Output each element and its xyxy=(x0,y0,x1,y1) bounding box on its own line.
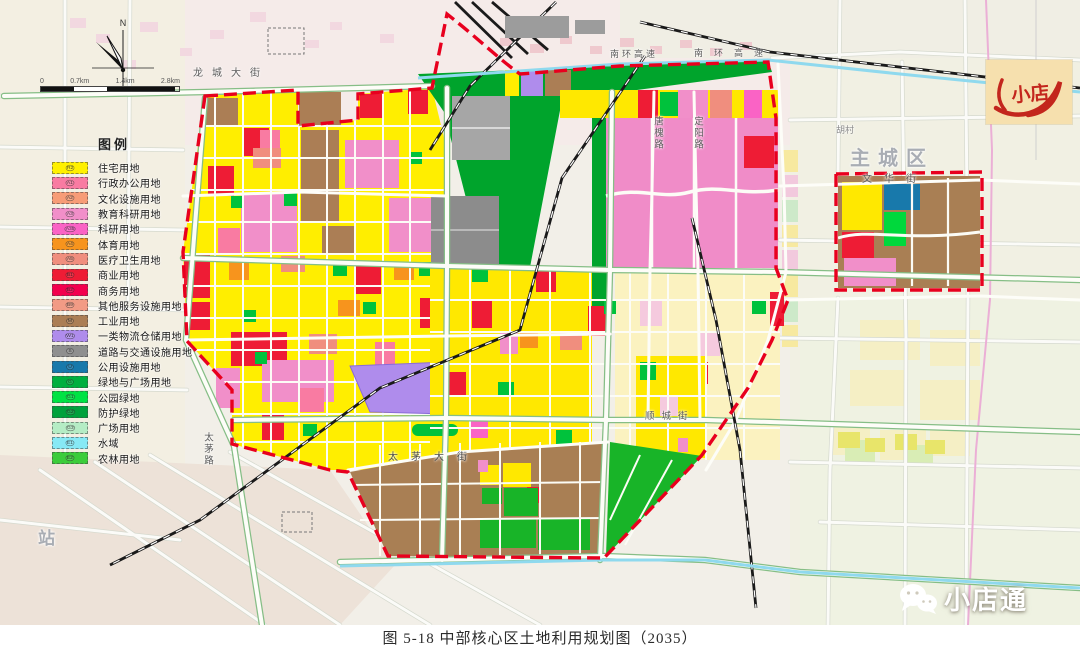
legend-code: M xyxy=(66,318,73,324)
legend-label: 住宅用地 xyxy=(98,160,140,175)
legend-code: A2 xyxy=(66,195,75,201)
legend-label: 防护绿地 xyxy=(98,405,140,420)
legend-item: B9其他服务设施用地 xyxy=(52,298,242,313)
page: N 0 0.7km 1.4km 2.8km 图例 R2住宅用地 A1行政办公用地… xyxy=(0,0,1080,655)
street-label-nanhuan-w: 南环高速 xyxy=(610,47,658,60)
legend-swatch: A5 xyxy=(52,253,88,265)
legend-swatch: U xyxy=(52,361,88,373)
legend-code: A3 xyxy=(66,210,75,216)
north-label: N xyxy=(88,18,158,28)
legend-code: E2 xyxy=(66,455,75,461)
land-use-map: N 0 0.7km 1.4km 2.8km 图例 R2住宅用地 A1行政办公用地… xyxy=(0,0,1080,625)
legend-item: A35科研用地 xyxy=(52,221,242,236)
street-label-taimao-road: 太茅路 xyxy=(200,432,214,467)
legend-item: A2文化设施用地 xyxy=(52,191,242,206)
legend-label: 农林用地 xyxy=(98,451,140,466)
legend-item: W1一类物流仓储用地 xyxy=(52,328,242,343)
xiaodian-stamp: 小店 xyxy=(986,60,1072,124)
street-label-dingyang: 定阳路 xyxy=(690,116,704,151)
area-label-main-city: 主城区 xyxy=(850,142,934,171)
legend-label: 广场用地 xyxy=(98,420,140,435)
legend-swatch: R2 xyxy=(52,162,88,174)
legend-swatch: A3 xyxy=(52,208,88,220)
legend-code: B2 xyxy=(66,287,75,293)
legend-item: A3教育科研用地 xyxy=(52,206,242,221)
watermark: 小店通 xyxy=(898,580,1028,617)
legend-title: 图例 xyxy=(52,134,242,153)
legend-code: R2 xyxy=(66,165,75,171)
legend-code: B1 xyxy=(66,272,75,278)
legend-swatch: S xyxy=(52,345,88,357)
legend-item: G1公园绿地 xyxy=(52,389,242,404)
legend-item: G2防护绿地 xyxy=(52,405,242,420)
legend-swatch: E1 xyxy=(52,437,88,449)
legend-code: G1 xyxy=(65,394,74,400)
legend-label: 医疗卫生用地 xyxy=(98,252,161,267)
legend-code: A4 xyxy=(66,241,75,247)
scale-tick: 0.7km xyxy=(70,78,89,85)
street-label-shuncheng: 顺城街 xyxy=(645,408,695,422)
legend-label: 绿地与广场用地 xyxy=(98,374,172,389)
legend-swatch: G xyxy=(52,376,88,388)
street-label-wenhua: 文华街 xyxy=(862,170,928,185)
legend-label: 一类物流仓储用地 xyxy=(98,328,182,343)
legend-label: 商业用地 xyxy=(98,267,140,282)
legend-item: M工业用地 xyxy=(52,313,242,328)
scale-tick: 2.8km xyxy=(161,78,180,85)
legend-code: G xyxy=(66,379,73,385)
street-label-nanhuan-e: 南环高速 xyxy=(694,46,774,59)
legend-item: S道路与交通设施用地 xyxy=(52,344,242,359)
legend-item: B2商务用地 xyxy=(52,282,242,297)
legend-item: R2住宅用地 xyxy=(52,160,242,175)
legend-swatch: B1 xyxy=(52,269,88,281)
legend-swatch: W1 xyxy=(52,330,88,342)
legend-code: A1 xyxy=(66,180,75,186)
legend-code: G3 xyxy=(65,425,74,431)
wechat-icon xyxy=(898,582,938,616)
figure-caption: 图 5-18 中部核心区土地利用规划图（2035） xyxy=(0,626,1080,655)
legend-label: 公园绿地 xyxy=(98,390,140,405)
legend-label: 其他服务设施用地 xyxy=(98,298,182,313)
legend-swatch: G2 xyxy=(52,406,88,418)
legend-swatch: E2 xyxy=(52,452,88,464)
street-label-longcheng: 龙城大街 xyxy=(193,64,269,79)
legend-swatch: B9 xyxy=(52,299,88,311)
legend-item: A5医疗卫生用地 xyxy=(52,252,242,267)
legend-label: 文化设施用地 xyxy=(98,191,161,206)
village-label-hucun: 胡村 xyxy=(836,123,854,136)
legend-label: 工业用地 xyxy=(98,313,140,328)
scale-bar-segments xyxy=(40,86,180,92)
legend-swatch: M xyxy=(52,315,88,327)
legend-code: B9 xyxy=(66,302,75,308)
legend-swatch: A35 xyxy=(52,223,88,235)
legend-swatch: G1 xyxy=(52,391,88,403)
legend-swatch: A1 xyxy=(52,177,88,189)
legend: 图例 R2住宅用地 A1行政办公用地 A2文化设施用地 A3教育科研用地 A35… xyxy=(52,134,242,466)
stamp-text: 小店 xyxy=(1010,81,1050,107)
legend-item: B1商业用地 xyxy=(52,267,242,282)
legend-code: E1 xyxy=(66,440,75,446)
legend-item: A1行政办公用地 xyxy=(52,175,242,190)
legend-code: S xyxy=(66,348,73,354)
legend-code: U xyxy=(66,363,73,369)
legend-item: U公用设施用地 xyxy=(52,359,242,374)
legend-item: A4体育用地 xyxy=(52,236,242,251)
legend-label: 行政办公用地 xyxy=(98,175,161,190)
legend-swatch: G3 xyxy=(52,422,88,434)
legend-code: W1 xyxy=(65,333,75,339)
legend-swatch: B2 xyxy=(52,284,88,296)
legend-label: 科研用地 xyxy=(98,221,140,236)
legend-label: 教育科研用地 xyxy=(98,206,161,221)
scale-tick: 0 xyxy=(40,78,44,85)
legend-label: 体育用地 xyxy=(98,237,140,252)
legend-code: A5 xyxy=(66,256,75,262)
scale-tick: 1.4km xyxy=(116,78,135,85)
legend-label: 道路与交通设施用地 xyxy=(98,344,193,359)
legend-label: 水域 xyxy=(98,435,119,450)
legend-code: A35 xyxy=(64,226,75,232)
legend-label: 商务用地 xyxy=(98,283,140,298)
scale-bar: 0 0.7km 1.4km 2.8km xyxy=(40,78,180,92)
legend-code: G2 xyxy=(65,409,74,415)
street-label-tanghuai: 唐槐路 xyxy=(650,116,664,151)
legend-swatch: A4 xyxy=(52,238,88,250)
watermark-text: 小店通 xyxy=(944,580,1028,617)
legend-item: G绿地与广场用地 xyxy=(52,374,242,389)
area-label-station: 站 xyxy=(38,524,55,549)
legend-label: 公用设施用地 xyxy=(98,359,161,374)
street-label-taimao-street: 太茅大街 xyxy=(388,448,480,463)
legend-swatch: A2 xyxy=(52,192,88,204)
